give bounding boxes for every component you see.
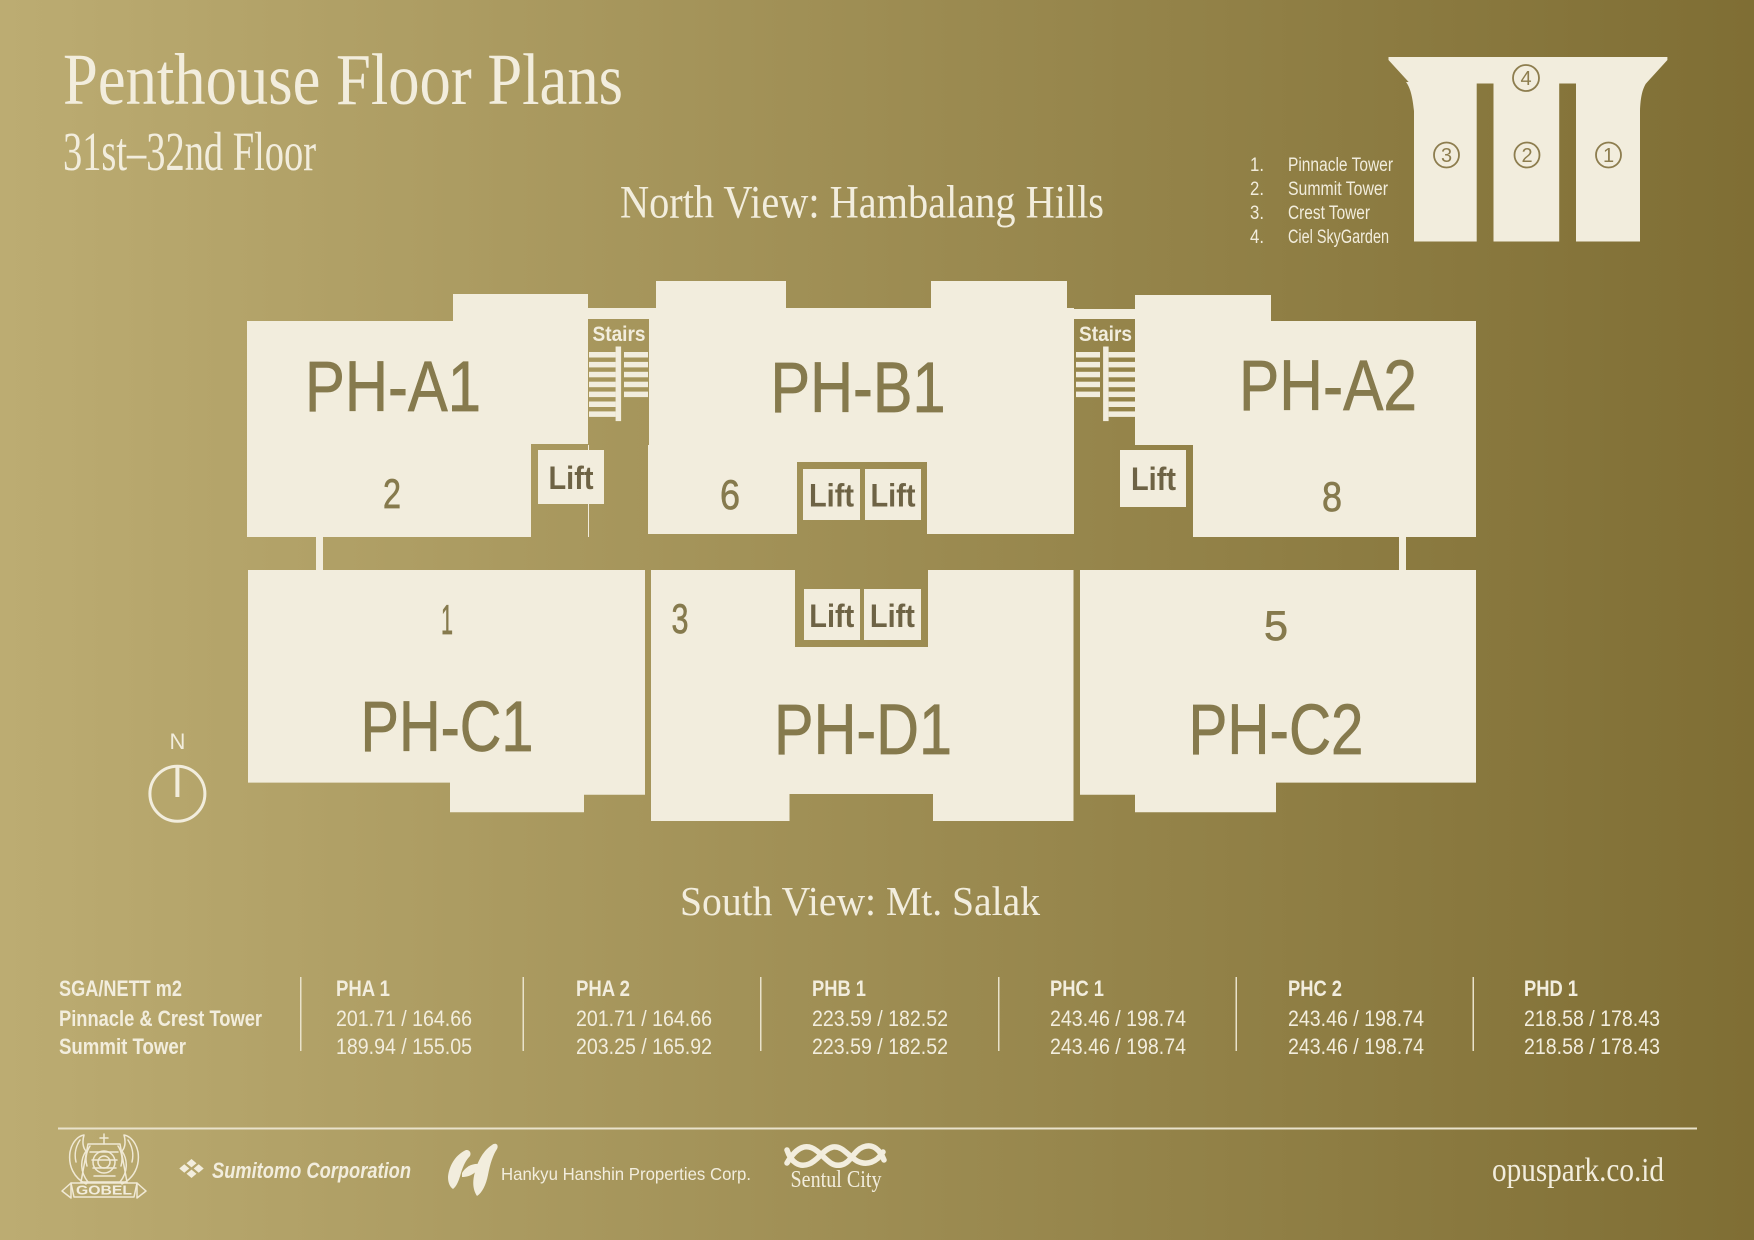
- svg-text:201.71 / 164.66: 201.71 / 164.66: [576, 1006, 712, 1031]
- svg-text:PH-B1: PH-B1: [771, 349, 946, 428]
- svg-text:4: 4: [1520, 68, 1531, 90]
- svg-text:3: 3: [672, 595, 689, 642]
- svg-text:Pinnacle Tower: Pinnacle Tower: [1288, 155, 1394, 176]
- svg-text:4.: 4.: [1250, 227, 1264, 248]
- svg-text:Lift: Lift: [809, 478, 854, 514]
- svg-text:Lift: Lift: [870, 598, 915, 634]
- svg-text:North View: Hambalang Hills: North View: Hambalang Hills: [620, 177, 1104, 229]
- svg-text:6: 6: [720, 471, 740, 518]
- svg-text:Ciel SkyGarden: Ciel SkyGarden: [1288, 227, 1389, 248]
- svg-text:PHD 1: PHD 1: [1524, 976, 1578, 1001]
- svg-text:218.58 / 178.43: 218.58 / 178.43: [1524, 1034, 1660, 1059]
- svg-text:1: 1: [1603, 145, 1614, 167]
- svg-text:2.: 2.: [1250, 179, 1264, 200]
- svg-text:PHC 1: PHC 1: [1050, 976, 1104, 1001]
- svg-text:2: 2: [1521, 145, 1532, 167]
- svg-text:Lift: Lift: [549, 460, 594, 496]
- svg-text:Lift: Lift: [809, 598, 854, 634]
- svg-text:Lift: Lift: [871, 478, 916, 514]
- svg-text:3: 3: [1441, 145, 1452, 167]
- svg-text:201.71 / 164.66: 201.71 / 164.66: [336, 1006, 472, 1031]
- svg-text:PHC 2: PHC 2: [1288, 976, 1342, 1001]
- svg-text:203.25 / 165.92: 203.25 / 165.92: [576, 1034, 712, 1059]
- svg-text:243.46 / 198.74: 243.46 / 198.74: [1288, 1006, 1424, 1031]
- svg-text:243.46 / 198.74: 243.46 / 198.74: [1288, 1034, 1424, 1059]
- svg-text:223.59 / 182.52: 223.59 / 182.52: [812, 1006, 948, 1031]
- svg-text:243.46 / 198.74: 243.46 / 198.74: [1050, 1034, 1186, 1059]
- svg-text:Penthouse Floor Plans: Penthouse Floor Plans: [63, 39, 623, 120]
- svg-text:Lift: Lift: [1131, 461, 1176, 497]
- svg-text:243.46 / 198.74: 243.46 / 198.74: [1050, 1006, 1186, 1031]
- svg-text:PH-C2: PH-C2: [1189, 691, 1364, 770]
- svg-text:5: 5: [1264, 602, 1288, 649]
- svg-text:Summit Tower: Summit Tower: [1288, 179, 1389, 200]
- svg-text:opuspark.co.id: opuspark.co.id: [1492, 1152, 1664, 1189]
- svg-text:PHB 1: PHB 1: [812, 976, 866, 1001]
- svg-text:1: 1: [441, 596, 453, 643]
- svg-text:Summit Tower: Summit Tower: [59, 1034, 186, 1059]
- svg-text:31st–32nd Floor: 31st–32nd Floor: [63, 121, 316, 182]
- svg-text:223.59 / 182.52: 223.59 / 182.52: [812, 1034, 948, 1059]
- svg-text:Hankyu Hanshin Properties Corp: Hankyu Hanshin Properties Corp.: [501, 1164, 751, 1184]
- svg-text:PHA 1: PHA 1: [336, 976, 390, 1001]
- svg-text:PH-C1: PH-C1: [361, 688, 534, 767]
- svg-text:8: 8: [1322, 473, 1342, 520]
- svg-text:PH-A1: PH-A1: [305, 348, 481, 427]
- svg-text:189.94 / 155.05: 189.94 / 155.05: [336, 1034, 472, 1059]
- svg-text:Pinnacle & Crest Tower: Pinnacle & Crest Tower: [59, 1006, 262, 1031]
- svg-text:Sentul City: Sentul City: [791, 1167, 882, 1193]
- svg-text:Stairs: Stairs: [593, 323, 646, 346]
- svg-text:1.: 1.: [1250, 155, 1264, 176]
- svg-text:PH-D1: PH-D1: [774, 691, 952, 770]
- svg-text:Stairs: Stairs: [1079, 323, 1132, 346]
- svg-text:218.58 / 178.43: 218.58 / 178.43: [1524, 1006, 1660, 1031]
- svg-text:SGA/NETT m2: SGA/NETT m2: [59, 976, 182, 1001]
- svg-text:N: N: [169, 729, 185, 754]
- svg-text:3.: 3.: [1250, 203, 1264, 224]
- svg-text:Crest Tower: Crest Tower: [1288, 203, 1371, 224]
- svg-text:South View: Mt. Salak: South View: Mt. Salak: [680, 878, 1040, 924]
- svg-text:GOBEL: GOBEL: [76, 1183, 132, 1198]
- svg-text:Sumitomo Corporation: Sumitomo Corporation: [212, 1158, 411, 1183]
- svg-text:PH-A2: PH-A2: [1239, 347, 1417, 426]
- svg-text:PHA 2: PHA 2: [576, 976, 630, 1001]
- svg-text:2: 2: [383, 470, 401, 517]
